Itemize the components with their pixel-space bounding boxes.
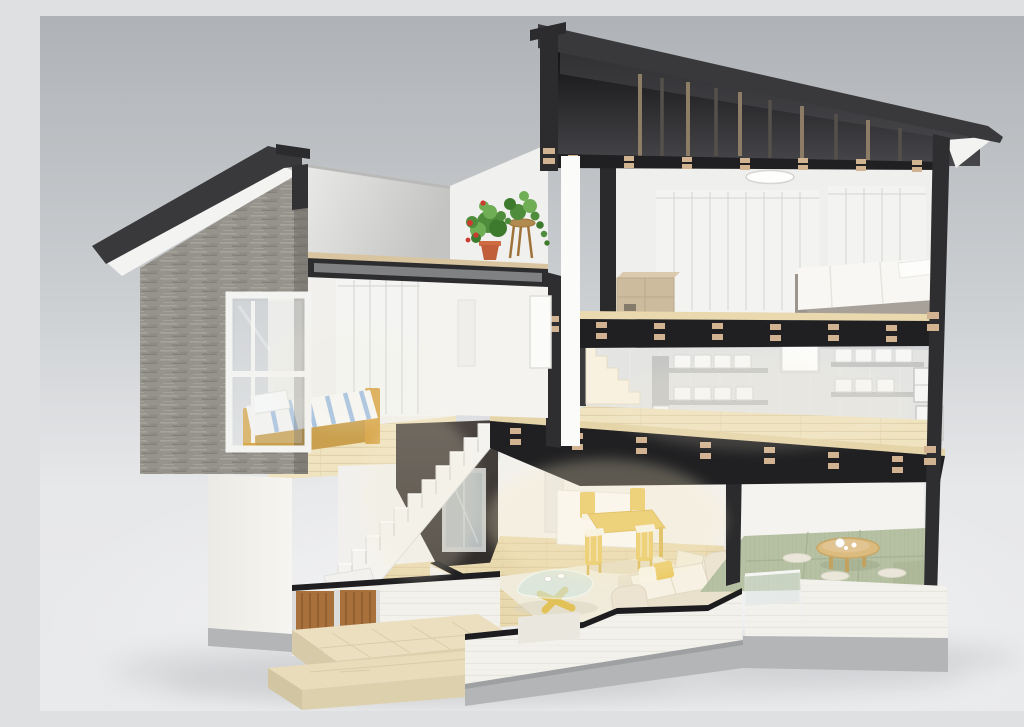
bedroom-left-cut-wall [600, 166, 616, 318]
cutaway-house-render [40, 16, 1024, 711]
teapot [836, 539, 845, 548]
left-roof-cut-end [292, 164, 308, 210]
hallway-walls [420, 278, 548, 418]
foundation-right [743, 636, 948, 672]
cup-2 [558, 574, 565, 579]
low-round-table [817, 538, 880, 572]
storage-boxes-row4 [835, 379, 894, 392]
cup-1 [545, 577, 552, 582]
main-bed [795, 258, 939, 322]
glass-balustrade [745, 572, 800, 608]
terracotta-pot [481, 245, 499, 260]
entrance-side-wall [208, 474, 292, 636]
tea-cup-1 [852, 543, 857, 548]
floor-cushion-1 [783, 554, 811, 563]
tatami-front-wall-low [745, 602, 803, 640]
hallway-door-2 [458, 300, 475, 366]
bedroom-window [229, 295, 308, 449]
white-pillow [638, 566, 657, 583]
joist-band-2f [580, 319, 933, 348]
floor-band-2f [580, 311, 933, 348]
inner-bright-wall [561, 156, 580, 446]
main-bedroom [600, 166, 939, 322]
storage-window [781, 344, 819, 372]
dresser-item [624, 304, 636, 311]
tatami-front-wall [800, 579, 948, 639]
stand-top [509, 219, 535, 227]
floor-cushion-3 [878, 569, 906, 578]
floor-cushion-2 [821, 572, 849, 581]
hallway-door [530, 296, 551, 368]
render-canvas [40, 16, 1024, 711]
tea-cup-2 [844, 546, 848, 550]
ceiling-light [746, 171, 794, 184]
dresser [617, 272, 680, 316]
